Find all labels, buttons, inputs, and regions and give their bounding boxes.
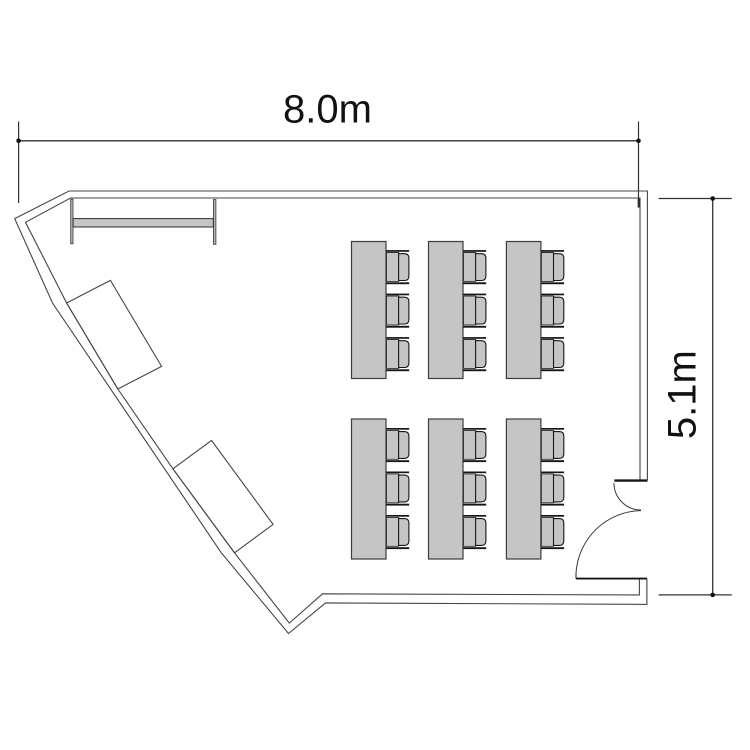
svg-text:5.1m: 5.1m [661,350,705,439]
svg-text:8.0m: 8.0m [283,87,372,131]
